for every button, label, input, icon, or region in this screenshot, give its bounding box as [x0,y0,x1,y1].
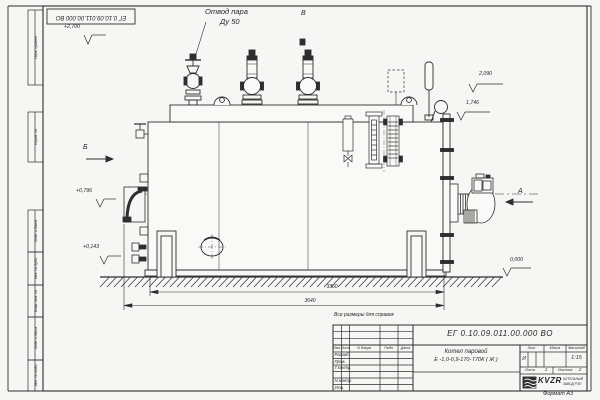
elevation-left-mid: +0,796 [76,189,92,194]
lit-value: И [522,357,526,362]
col-sign: Подп. [384,347,394,351]
row-approved: Утв. [335,386,345,390]
sheet-number: 1 [545,368,548,373]
ground-hatch [100,277,503,287]
company-name-line2: ЗАВОД РЭП [563,383,581,386]
col-izm: Изм. [333,347,341,351]
steam-outlet-valve [184,54,202,105]
view-label-left: Б [83,144,88,151]
scale-label: Масштаб [568,347,585,351]
company-name-line1: КОТЕЛЬНЫЙ [563,378,583,381]
format-note: Формат А3 [543,392,573,398]
side-label-podp-data-1: Подп. и дата [35,220,39,243]
sheet-label: Лист [525,368,535,372]
elevation-ground: 0,000 [510,258,523,263]
boiler-body [145,105,446,276]
view-label-top: В [301,10,306,17]
steam-outlet-leader [196,22,206,54]
title-block-doc-number: ЕГ 0.10.09.011.00.000 ВО [447,330,553,338]
safety-valve-right [297,39,320,104]
row-ncontrol: Н.контр. [335,379,353,383]
drawing-linework [0,0,600,400]
side-label-inv-podl: Инв. № подл. [35,364,39,386]
sheets-label: Листов [558,368,573,372]
company-logo-icon [523,377,537,388]
steam-outlet-label-line1: Отвод пара [205,8,248,16]
steam-outlet-label-line2: Ду 50 [220,18,240,26]
left-wall-fittings [123,124,148,263]
product-name-line2: Е -1,0-0,9-170- ГЛЖ ( Ж ) [434,358,497,364]
elevation-right-upper: 2,090 [479,72,492,77]
col-doc: N докум. [357,347,372,351]
elevation-top: +2,700 [64,25,80,30]
side-label-perv-primen: Перв. примен. [35,35,39,59]
side-label-podp-data-2: Подп. и дата [35,327,39,350]
side-label-vzam-inv: Взам. инв. № [35,290,39,312]
safety-valve-left [241,50,264,104]
view-label-right: А [518,188,523,195]
elevation-left-low: +0,143 [83,245,99,250]
dimension-overall-length: 3640 [304,299,315,304]
elevation-right-mid: 1,746 [466,101,479,106]
drawing-sheet: ЕГ 0.10.09.011.00.000 ВО Отвод пара Ду 5… [0,0,600,400]
side-label-inv-dubl: Инв. № дубл. [35,257,39,279]
product-name-line1: Котел паровой [444,349,487,355]
burner [450,174,495,223]
scale-value: 1:15 [571,356,582,362]
view-arrow-a [506,199,533,205]
reference-note: Все размеры для справок [334,313,394,318]
row-tcontrol: Т.контр. [335,366,352,370]
row-checked: Пров. [335,360,346,364]
mass-label: Масса [550,347,561,351]
side-label-sprav: Справ. № [35,129,39,145]
col-date: Дата [401,347,410,351]
lit-label: Лит. [528,347,536,351]
top-stamp-doc-number: ЕГ 0.10.09.011.00.000 ВО [56,14,126,20]
view-arrow-b [86,156,113,162]
dimension-body-length: 3360 [326,285,337,290]
sheets-total: 2 [579,368,582,373]
col-list: Лист [341,347,350,351]
row-developed: Разраб. [335,353,350,357]
company-logo-text: KVZR [538,377,562,385]
